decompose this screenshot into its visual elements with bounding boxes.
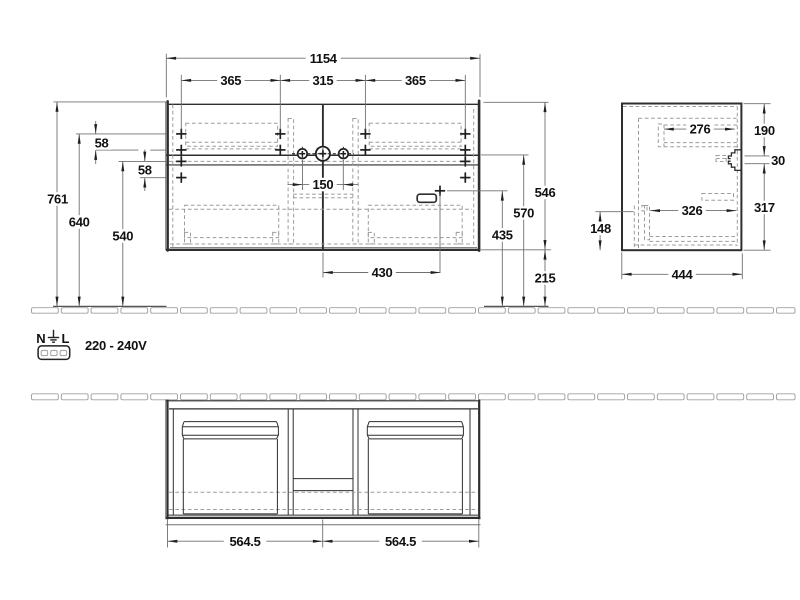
svg-text:444: 444 <box>672 267 694 282</box>
svg-text:220 - 240V: 220 - 240V <box>85 338 147 353</box>
svg-text:570: 570 <box>513 206 534 221</box>
svg-text:365: 365 <box>405 73 426 88</box>
svg-text:150: 150 <box>313 177 334 192</box>
svg-text:30: 30 <box>771 153 785 168</box>
svg-text:365: 365 <box>220 73 241 88</box>
svg-text:276: 276 <box>690 122 711 137</box>
svg-text:564.5: 564.5 <box>385 534 416 549</box>
svg-text:215: 215 <box>535 271 556 286</box>
svg-text:564.5: 564.5 <box>229 534 260 549</box>
svg-text:435: 435 <box>492 228 513 243</box>
svg-text:540: 540 <box>112 229 133 244</box>
svg-text:430: 430 <box>372 265 393 280</box>
svg-text:326: 326 <box>682 203 703 218</box>
svg-text:315: 315 <box>313 73 334 88</box>
svg-text:317: 317 <box>754 200 775 215</box>
svg-text:58: 58 <box>95 136 109 151</box>
svg-text:190: 190 <box>754 123 775 138</box>
svg-text:640: 640 <box>69 215 90 230</box>
svg-text:1154: 1154 <box>310 51 338 66</box>
svg-text:546: 546 <box>535 185 556 200</box>
svg-text:58: 58 <box>138 163 152 178</box>
svg-text:761: 761 <box>47 192 68 207</box>
svg-text:L: L <box>62 331 70 346</box>
svg-text:148: 148 <box>590 221 611 236</box>
svg-text:N: N <box>36 331 45 346</box>
